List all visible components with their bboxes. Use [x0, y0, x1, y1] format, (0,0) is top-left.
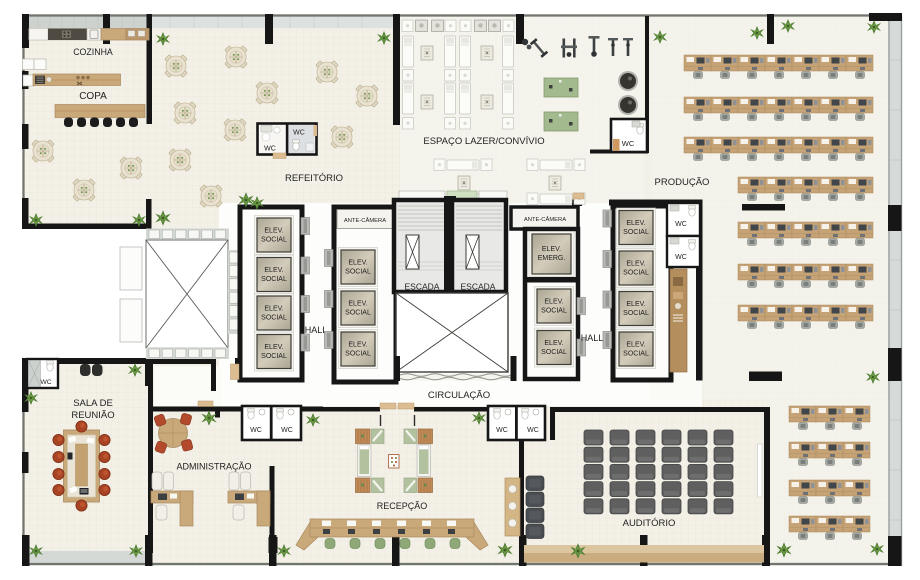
svg-text:ESPAÇO LAZER/CONVÍVIO: ESPAÇO LAZER/CONVÍVIO — [423, 136, 544, 147]
svg-text:WC: WC — [250, 427, 262, 434]
svg-text:ANTE-CÂMERA: ANTE-CÂMERA — [524, 216, 566, 223]
svg-text:REUNIÃO: REUNIÃO — [71, 410, 114, 421]
svg-text:COZINHA: COZINHA — [73, 47, 113, 57]
svg-text:REFEITÓRIO: REFEITÓRIO — [285, 173, 343, 184]
svg-text:WC: WC — [527, 427, 539, 434]
svg-text:EMERG.: EMERG. — [538, 255, 566, 262]
svg-text:COPA: COPA — [79, 91, 107, 102]
svg-text:ESCADA: ESCADA — [461, 282, 496, 292]
svg-text:RECEPÇÃO: RECEPÇÃO — [377, 501, 428, 511]
svg-text:ESCADA: ESCADA — [405, 282, 440, 292]
svg-text:SALA DE: SALA DE — [73, 398, 113, 409]
svg-text:HALL: HALL — [581, 333, 604, 343]
svg-text:ELEV.: ELEV. — [542, 246, 561, 253]
svg-text:PRODUÇÃO: PRODUÇÃO — [655, 177, 710, 188]
svg-text:HALL: HALL — [305, 325, 328, 335]
svg-text:WC: WC — [40, 379, 51, 386]
svg-text:WC: WC — [264, 146, 276, 153]
svg-text:ADMINISTRAÇÃO: ADMINISTRAÇÃO — [176, 462, 251, 472]
svg-text:CIRCULAÇÃO: CIRCULAÇÃO — [428, 390, 490, 401]
svg-text:WC: WC — [675, 221, 687, 228]
svg-text:WC: WC — [622, 139, 635, 148]
svg-text:AUDITÓRIO: AUDITÓRIO — [623, 518, 676, 529]
svg-text:ANTE-CÂMERA: ANTE-CÂMERA — [344, 217, 386, 224]
svg-text:WC: WC — [293, 130, 305, 137]
svg-text:WC: WC — [496, 427, 508, 434]
svg-text:WC: WC — [675, 254, 687, 261]
svg-text:WC: WC — [281, 427, 293, 434]
